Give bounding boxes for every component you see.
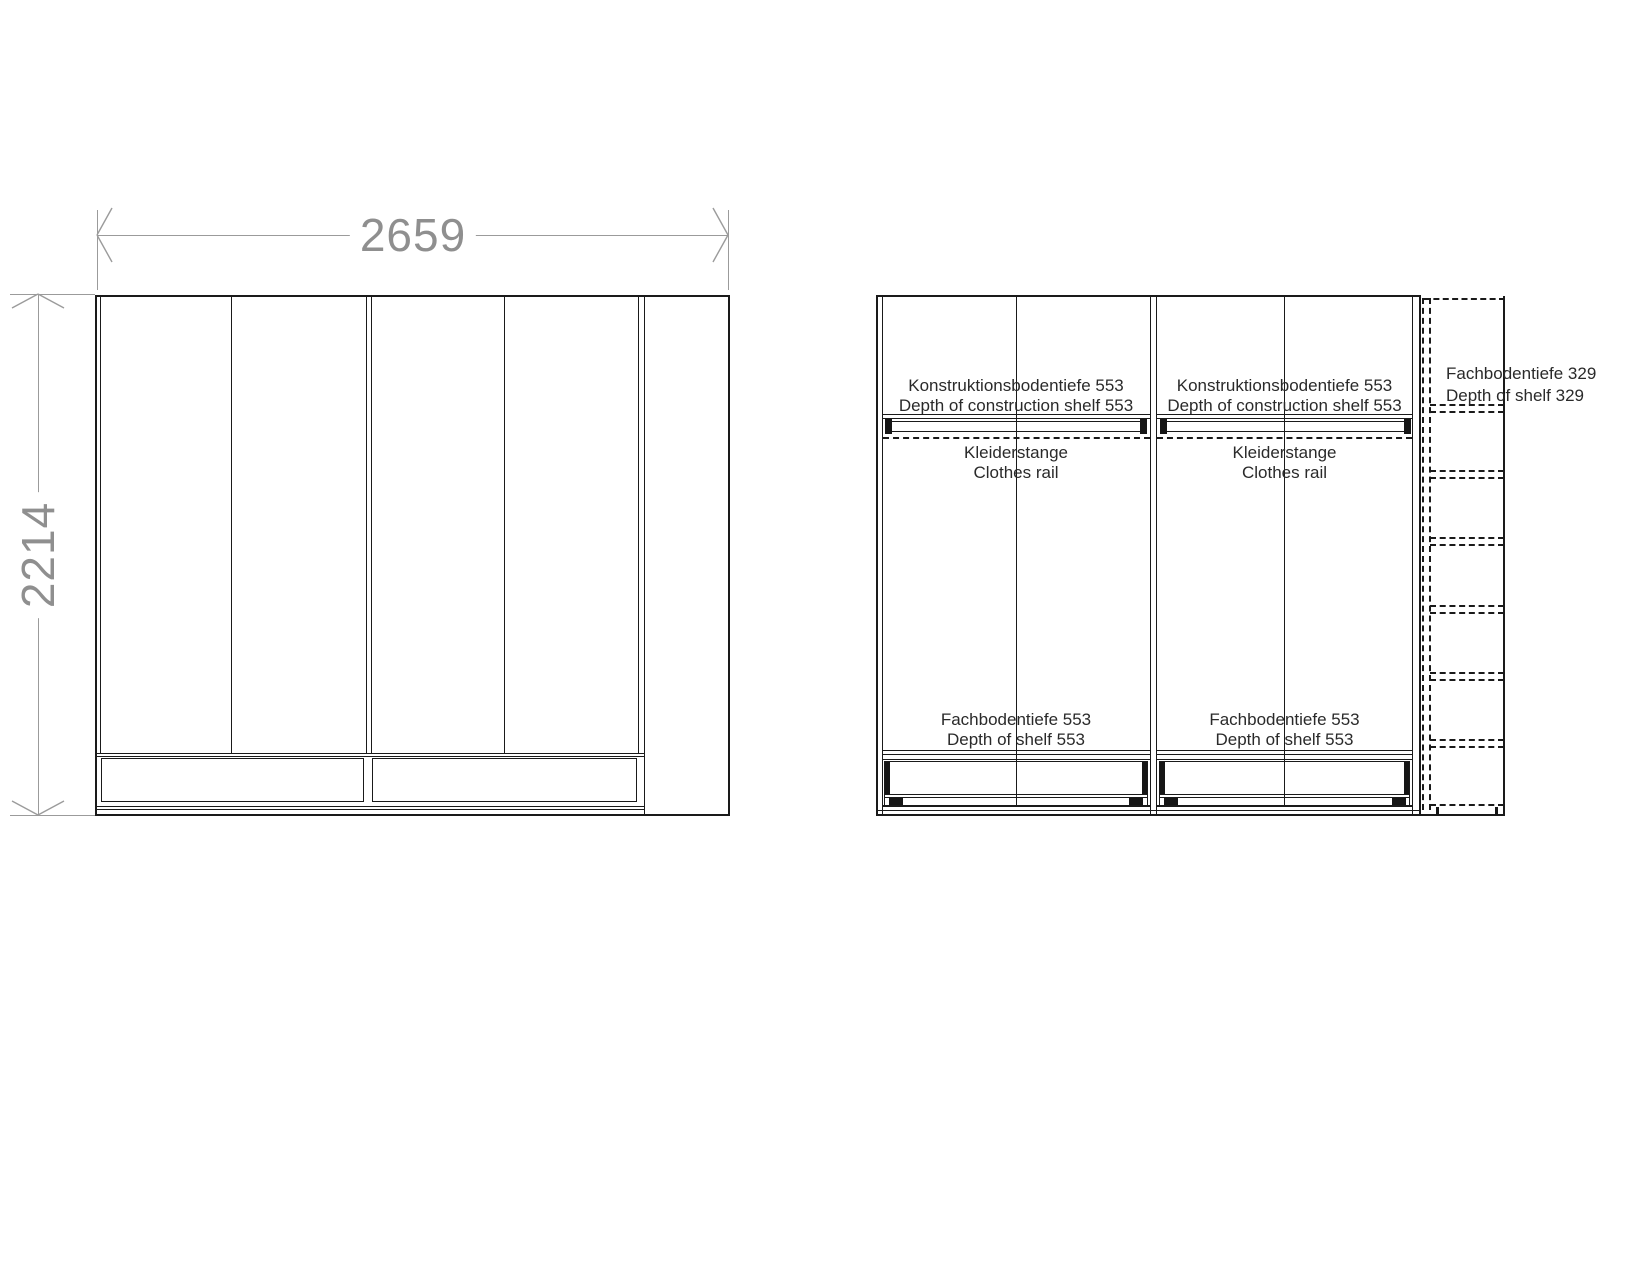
construction-shelf-line (1157, 418, 1412, 419)
door-gap-line (366, 295, 367, 753)
drawer-slide-line (885, 797, 1147, 798)
column-foot (1436, 807, 1439, 815)
drawer-top-line (883, 759, 1150, 760)
drawer-box (1159, 761, 1410, 806)
drawer-front (101, 758, 364, 802)
side-panel-line (1412, 295, 1413, 816)
plinth-line (876, 810, 1421, 811)
clothes-rail-end-cap (1404, 419, 1411, 434)
clothes-rail-end-cap (885, 419, 892, 434)
shelf-line (883, 754, 1150, 755)
clothes-rail-end-cap (1160, 419, 1167, 434)
clothes-rail-label-en: Clothes rail (1157, 463, 1412, 483)
drawer-bracket (1160, 762, 1165, 794)
clothes-rail-label: Kleiderstange Clothes rail (882, 443, 1150, 483)
construction-shelf-line (883, 414, 1150, 415)
door-gap-line (100, 295, 101, 753)
dashed-shelf (1430, 672, 1504, 681)
door-gap-line (638, 295, 639, 753)
rail-dashed-line (1157, 437, 1412, 439)
shelf-label-en: Depth of shelf 553 (1157, 730, 1412, 750)
shelf-label: Fachbodentiefe 553 Depth of shelf 553 (882, 710, 1150, 750)
dim-extension (10, 815, 95, 816)
door-gap-line (371, 295, 372, 753)
dim-extension (10, 294, 95, 295)
drawer-bottom-line (1157, 805, 1412, 807)
cabinet-outline (95, 295, 730, 816)
dashed-shelf (1430, 537, 1504, 546)
drawer-bracket (1404, 762, 1409, 794)
column-bottom-line (1421, 814, 1505, 816)
drawer-bracket (885, 762, 890, 794)
plinth-line (95, 809, 644, 810)
construction-shelf-line (883, 418, 1150, 419)
construction-shelf-line (1157, 414, 1412, 415)
width-value: 2659 (350, 208, 476, 262)
shelf-label-de: Fachbodentiefe 553 (882, 710, 1150, 730)
side-panel-line (644, 295, 645, 816)
drawer-slide-line (1160, 794, 1409, 795)
column-dashed-top (1424, 298, 1505, 300)
clothes-rail-label: Kleiderstange Clothes rail (1157, 443, 1412, 483)
mid-wall-line (1150, 295, 1151, 816)
shelf-label-en: Depth of shelf 553 (882, 730, 1150, 750)
shelf-label: Fachbodentiefe 553 Depth of shelf 553 (1157, 710, 1412, 750)
clothes-rail-label-en: Clothes rail (882, 463, 1150, 483)
rail-dashed-line (883, 437, 1150, 439)
clothes-rail-label-de: Kleiderstange (1157, 443, 1412, 463)
column-foot (1495, 807, 1498, 815)
drawer-top-line (1157, 759, 1412, 760)
drawer-front (372, 758, 637, 802)
clothes-rail-end-cap (1140, 419, 1147, 434)
dashed-shelf (1430, 739, 1504, 748)
clothes-rail-bar (888, 421, 1144, 432)
column-dashed-side (1422, 298, 1431, 810)
side-column-label: Fachbodentiefe 329 Depth of shelf 329 (1446, 363, 1596, 407)
door-divider (504, 295, 505, 753)
drawer-top-line (95, 753, 644, 754)
dashed-shelf (1430, 470, 1504, 479)
shelf-line (1157, 754, 1412, 755)
side-column-label-en: Depth of shelf 329 (1446, 385, 1596, 407)
construction-shelf-label-en: Depth of construction shelf 553 (1157, 396, 1412, 416)
dashed-shelf (1430, 605, 1504, 614)
side-column-label-de: Fachbodentiefe 329 (1446, 363, 1596, 385)
drawer-bottom-line (883, 805, 1150, 807)
shelf-line (883, 750, 1150, 751)
clothes-rail-label-de: Kleiderstange (882, 443, 1150, 463)
technical-drawing: 2659 2214 Konstruktionsbodentiefe 553 (0, 0, 1650, 1275)
construction-shelf-label: Konstruktionsbodentiefe 553 Depth of con… (1157, 376, 1412, 416)
drawer-bracket (1142, 762, 1147, 794)
clothes-rail-bar (1163, 421, 1406, 432)
height-value: 2214 (11, 492, 65, 618)
drawer-top-line (95, 756, 644, 757)
plinth-line (95, 806, 644, 807)
shelf-label-de: Fachbodentiefe 553 (1157, 710, 1412, 730)
door-divider (231, 295, 232, 753)
drawer-slide-line (885, 794, 1147, 795)
drawer-slide-line (1160, 797, 1409, 798)
dim-extension (97, 210, 98, 290)
shelf-line (1157, 750, 1412, 751)
drawer-box (884, 761, 1148, 806)
construction-shelf-label-de: Konstruktionsbodentiefe 553 (882, 376, 1150, 396)
construction-shelf-label: Konstruktionsbodentiefe 553 Depth of con… (882, 376, 1150, 416)
construction-shelf-label-en: Depth of construction shelf 553 (882, 396, 1150, 416)
dim-extension (728, 210, 729, 290)
construction-shelf-label-de: Konstruktionsbodentiefe 553 (1157, 376, 1412, 396)
column-dashed-bottom (1430, 804, 1504, 806)
